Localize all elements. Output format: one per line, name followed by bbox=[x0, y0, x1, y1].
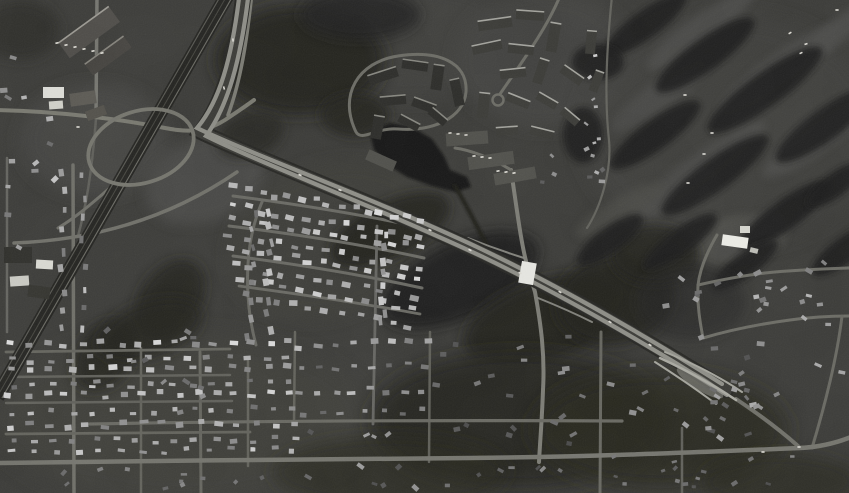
texture-layer bbox=[0, 0, 849, 493]
aerial-photo bbox=[0, 0, 849, 493]
aerial-photo-canvas bbox=[0, 0, 849, 493]
